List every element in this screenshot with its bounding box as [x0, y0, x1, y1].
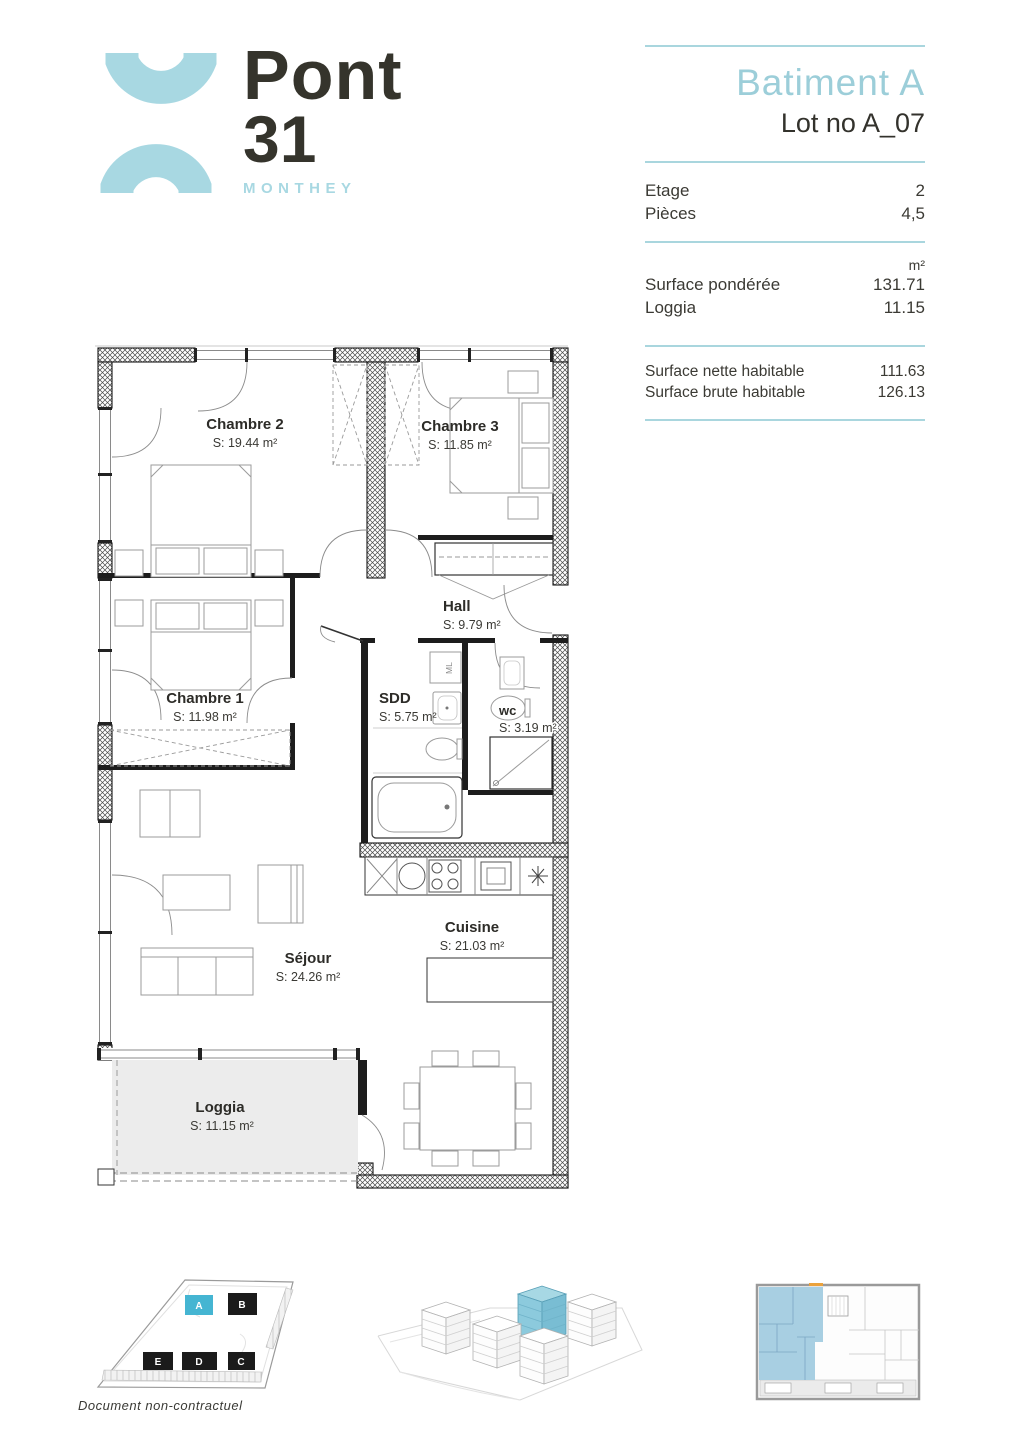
room-label-sdd: SDD [379, 690, 411, 707]
room-area-sejour: S: 24.26 m² [276, 970, 341, 984]
surface-nette-value: 111.63 [880, 361, 925, 382]
disclaimer-text: Document non-contractuel [78, 1398, 242, 1413]
brochure-page: Pont 31 MONTHEY Batiment A Lot no A_07 E… [0, 0, 1018, 1440]
kitchen-island [427, 958, 553, 1002]
logo-mark-icon [95, 48, 225, 198]
surface-nette-row: Surface nette habitable 111.63 [645, 361, 925, 382]
etage-row: Etage 2 [645, 179, 925, 202]
room-area-chambre3: S: 11.85 m² [428, 438, 492, 452]
room-label-sejour: Séjour [285, 950, 332, 967]
dining-table [404, 1051, 531, 1166]
lot-number: Lot no A_07 [645, 108, 925, 139]
logo-number: 31 [243, 106, 403, 172]
unit-header: m² [645, 257, 925, 273]
room-label-hall: Hall [443, 598, 471, 615]
etage-label: Etage [645, 179, 689, 202]
divider [645, 419, 925, 421]
room-label-chambre1: Chambre 1 [166, 690, 244, 707]
room-label-cuisine: Cuisine [445, 919, 499, 936]
pieces-row: Pièces 4,5 [645, 202, 925, 225]
room-label-chambre2: Chambre 2 [206, 416, 284, 433]
logo-name: Pont [243, 40, 403, 110]
room-area-hall: S: 9.79 m² [443, 618, 501, 632]
divider [645, 161, 925, 163]
loggia-row: Loggia 11.15 [645, 296, 925, 319]
kitchen-counter [365, 857, 553, 895]
room-area-chambre2: S: 19.44 m² [213, 436, 278, 450]
site-block-b-label: B [238, 1300, 245, 1311]
site-plan-thumbnail: A B E D C [90, 1274, 305, 1399]
surface-ponderee-value: 131.71 [873, 273, 925, 296]
site-block-c-label: C [237, 1357, 244, 1368]
divider [645, 45, 925, 47]
room-area-chambre1: S: 11.98 m² [173, 710, 237, 724]
surface-brute-row: Surface brute habitable 126.13 [645, 382, 925, 403]
highlighted-unit [759, 1287, 823, 1380]
bed-chambre2 [115, 465, 283, 577]
sejour-furniture [140, 790, 303, 995]
building-title: Batiment A [645, 62, 925, 104]
floor-overview-thumbnail [753, 1282, 923, 1404]
etage-value: 2 [916, 179, 925, 202]
logo-text: Pont 31 MONTHEY [243, 40, 403, 196]
room-label-loggia: Loggia [195, 1099, 245, 1116]
etage-pieces-rows: Etage 2 Pièces 4,5 [645, 179, 925, 225]
floor-plan: ML Chambre 2 S: 19.44 m² Chambr [95, 345, 570, 1195]
logo-city: MONTHEY [243, 181, 403, 196]
site-block-d-label: D [195, 1357, 202, 1368]
surface-ponderee-label: Surface pondérée [645, 273, 780, 296]
surface-brute-label: Surface brute habitable [645, 382, 805, 403]
site-block-e-label: E [155, 1357, 162, 1368]
hall-wardrobe [435, 543, 553, 599]
room-area-wc: S: 3.19 m² [499, 721, 557, 735]
pieces-label: Pièces [645, 202, 696, 225]
site-block-a-label: A [195, 1301, 202, 1312]
surface-nette-label: Surface nette habitable [645, 361, 804, 382]
surface-ponderee-row: Surface pondérée 131.71 [645, 273, 925, 296]
habitable-rows: Surface nette habitable 111.63 Surface b… [645, 361, 925, 403]
washing-machine-label: ML [444, 662, 454, 674]
sdd-fixtures: ML [372, 652, 462, 838]
pieces-value: 4,5 [901, 202, 925, 225]
room-label-wc: wc [498, 703, 516, 718]
loggia-label: Loggia [645, 296, 696, 319]
room-area-cuisine: S: 21.03 m² [440, 939, 505, 953]
room-area-sdd: S: 5.75 m² [379, 710, 437, 724]
surface-brute-value: 126.13 [878, 382, 925, 403]
logo [95, 48, 225, 198]
room-area-loggia: S: 11.15 m² [190, 1119, 254, 1133]
divider [645, 345, 925, 347]
room-label-chambre3: Chambre 3 [421, 418, 499, 435]
building-3d-thumbnail [370, 1272, 650, 1422]
info-panel: Batiment A Lot no A_07 Etage 2 Pièces 4,… [645, 45, 925, 421]
loggia-value: 11.15 [884, 296, 925, 319]
surface-rows: Surface pondérée 131.71 Loggia 11.15 [645, 273, 925, 319]
divider [645, 241, 925, 243]
